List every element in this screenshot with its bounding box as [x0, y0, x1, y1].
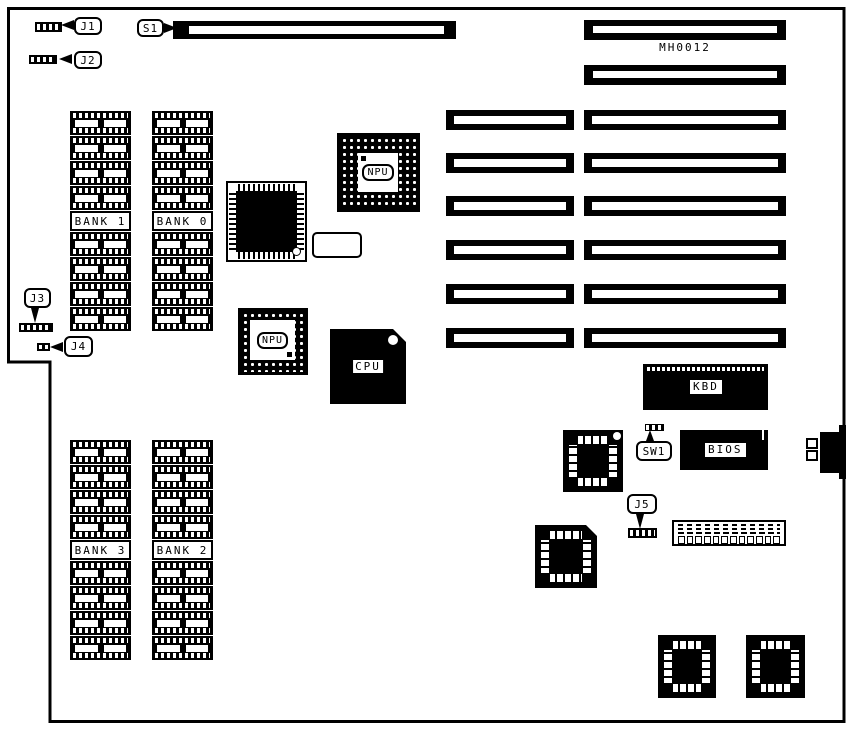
j5-callout-pointer — [636, 514, 644, 529]
expansion-slot-long-4 — [584, 240, 786, 260]
bank-chip-group — [152, 232, 213, 331]
memory-bank-1: BANK 1 — [70, 111, 131, 331]
connector-body — [820, 432, 846, 473]
j1-callout-pointer — [61, 20, 74, 30]
dip-chip — [70, 232, 131, 256]
bank-chip-group — [152, 440, 213, 539]
header-socket — [713, 536, 720, 544]
io-header-connector — [672, 520, 786, 546]
qfp-chip — [226, 181, 307, 262]
dip-chip — [70, 561, 131, 585]
bios-label: BIOS — [705, 443, 746, 457]
dip-chip — [152, 232, 213, 256]
j3-callout-pointer — [31, 308, 39, 323]
npu-top-center: NPU — [358, 153, 398, 192]
cpu-pin1-dot — [388, 335, 398, 345]
sw1-label: SW1 — [636, 441, 672, 461]
kbd-controller-chip: KBD — [643, 364, 768, 410]
expansion-slot-short-4 — [446, 240, 574, 260]
npu-mid-label: NPU — [257, 332, 288, 349]
header-socket — [721, 536, 728, 544]
kbd-pin-row — [647, 367, 764, 371]
dip-chip — [152, 636, 213, 660]
jumper-j4-label: J4 — [64, 336, 93, 357]
header-socket — [730, 536, 737, 544]
dip-chip — [70, 186, 131, 210]
dip-chip — [152, 136, 213, 160]
dip-chip — [152, 111, 213, 135]
dip-chip — [152, 186, 213, 210]
dip-chip — [70, 111, 131, 135]
plcc-chip-b — [535, 525, 597, 588]
bank-chip-group — [70, 232, 131, 331]
npu-mid-center: NPU — [250, 320, 295, 360]
header-socket — [765, 536, 772, 544]
bios-notch — [762, 430, 764, 440]
sw1-callout-pointer — [646, 430, 654, 441]
expansion-slot-long-1 — [584, 110, 786, 130]
crystal-socket — [312, 232, 362, 258]
dip-chip — [152, 465, 213, 489]
jumper-j1-pins — [35, 22, 62, 32]
pin1-mark — [287, 352, 292, 357]
dip-chip — [70, 136, 131, 160]
header-dash-row — [678, 532, 780, 534]
memory-bank-3: BANK 3 — [70, 440, 131, 660]
jumper-j2-pins — [29, 55, 57, 64]
memory-bank-2: BANK 2 — [152, 440, 213, 660]
dip-chip — [152, 561, 213, 585]
header-socket — [678, 536, 685, 544]
dip-chip — [70, 611, 131, 635]
dip-chip — [152, 307, 213, 331]
qfp-pins-top — [238, 184, 295, 191]
jumper-j1-label: J1 — [74, 17, 102, 35]
header-socket — [704, 536, 711, 544]
plcc-chip-a — [563, 430, 623, 492]
qfp-pins-bottom — [238, 252, 295, 259]
header-socket — [687, 536, 694, 544]
dip-chip — [152, 282, 213, 306]
bank-chip-group — [70, 440, 131, 539]
expansion-slot-long-2 — [584, 153, 786, 173]
connector-socket-2 — [806, 450, 818, 461]
motherboard-diagram: J1 J2 S1 MH0012 BANK 1 BANK 0 BANK 3 BAN… — [0, 0, 851, 731]
bank-3-label: BANK 3 — [70, 540, 131, 560]
expansion-slot-top-2 — [584, 65, 786, 85]
dip-chip — [70, 307, 131, 331]
dip-chip — [70, 636, 131, 660]
j4-callout-pointer — [50, 342, 63, 352]
npu-chip-top: NPU — [337, 133, 420, 212]
qfp-body — [236, 191, 297, 252]
dip-chip — [152, 586, 213, 610]
bank-0-label: BANK 0 — [152, 211, 213, 231]
qfp-pins-right — [297, 193, 304, 250]
plcc-chip-d — [746, 635, 805, 698]
dip-chip — [70, 586, 131, 610]
bank-chip-group — [152, 111, 213, 210]
header-socket-row — [678, 536, 780, 544]
jumper-j2-label: J2 — [74, 51, 102, 69]
expansion-slot-short-3 — [446, 196, 574, 216]
header-socket — [756, 536, 763, 544]
expansion-slot-top-1 — [584, 20, 786, 40]
bank-chip-group — [70, 561, 131, 660]
expansion-slot-long-6 — [584, 328, 786, 348]
dip-chip — [152, 490, 213, 514]
qfp-pin1-dot — [292, 247, 301, 256]
dip-chip — [70, 465, 131, 489]
bank-chip-group — [70, 111, 131, 210]
plcc-pin1-dot — [613, 432, 621, 440]
dip-chip — [70, 490, 131, 514]
dip-chip — [70, 515, 131, 539]
kbd-label: KBD — [690, 380, 722, 394]
pin1-mark — [361, 156, 366, 161]
bank-2-label: BANK 2 — [152, 540, 213, 560]
dip-chip — [152, 515, 213, 539]
dip-chip — [70, 161, 131, 185]
slot-s1 — [173, 21, 456, 39]
header-socket — [747, 536, 754, 544]
npu-top-label: NPU — [362, 164, 393, 181]
header-socket — [739, 536, 746, 544]
bios-chip: BIOS — [680, 430, 768, 470]
slot-s1-label: S1 — [137, 19, 164, 37]
jumper-j5-pins — [628, 528, 657, 538]
bank-chip-group — [152, 561, 213, 660]
board-code: MH0012 — [584, 41, 786, 54]
j2-callout-pointer — [59, 54, 72, 64]
jumper-j3-pins — [19, 323, 53, 332]
expansion-slot-short-6 — [446, 328, 574, 348]
dip-chip — [70, 257, 131, 281]
expansion-slot-short-5 — [446, 284, 574, 304]
header-pin-row — [678, 524, 780, 530]
jumper-j4-pins — [37, 343, 50, 351]
dip-chip — [152, 161, 213, 185]
dip-chip — [152, 611, 213, 635]
jumper-j5-label: J5 — [627, 494, 657, 514]
cpu-label: CPU — [353, 360, 383, 373]
memory-bank-0: BANK 0 — [152, 111, 213, 331]
dip-chip — [152, 440, 213, 464]
bank-1-label: BANK 1 — [70, 211, 131, 231]
plcc-chip-c — [658, 635, 716, 698]
qfp-pins-left — [229, 193, 236, 250]
header-socket — [695, 536, 702, 544]
expansion-slot-short-2 — [446, 153, 574, 173]
expansion-slot-long-5 — [584, 284, 786, 304]
dip-chip — [152, 257, 213, 281]
dip-chip — [70, 282, 131, 306]
expansion-slot-short-1 — [446, 110, 574, 130]
connector-socket-1 — [806, 438, 818, 449]
keyboard-din-connector — [806, 425, 846, 479]
header-socket — [773, 536, 780, 544]
plcc-corner-chamfer — [586, 525, 597, 536]
expansion-slot-long-3 — [584, 196, 786, 216]
jumper-j3-label: J3 — [24, 288, 51, 308]
npu-chip-mid: NPU — [238, 308, 308, 375]
dip-chip — [70, 440, 131, 464]
cpu-chip: CPU — [330, 329, 406, 404]
